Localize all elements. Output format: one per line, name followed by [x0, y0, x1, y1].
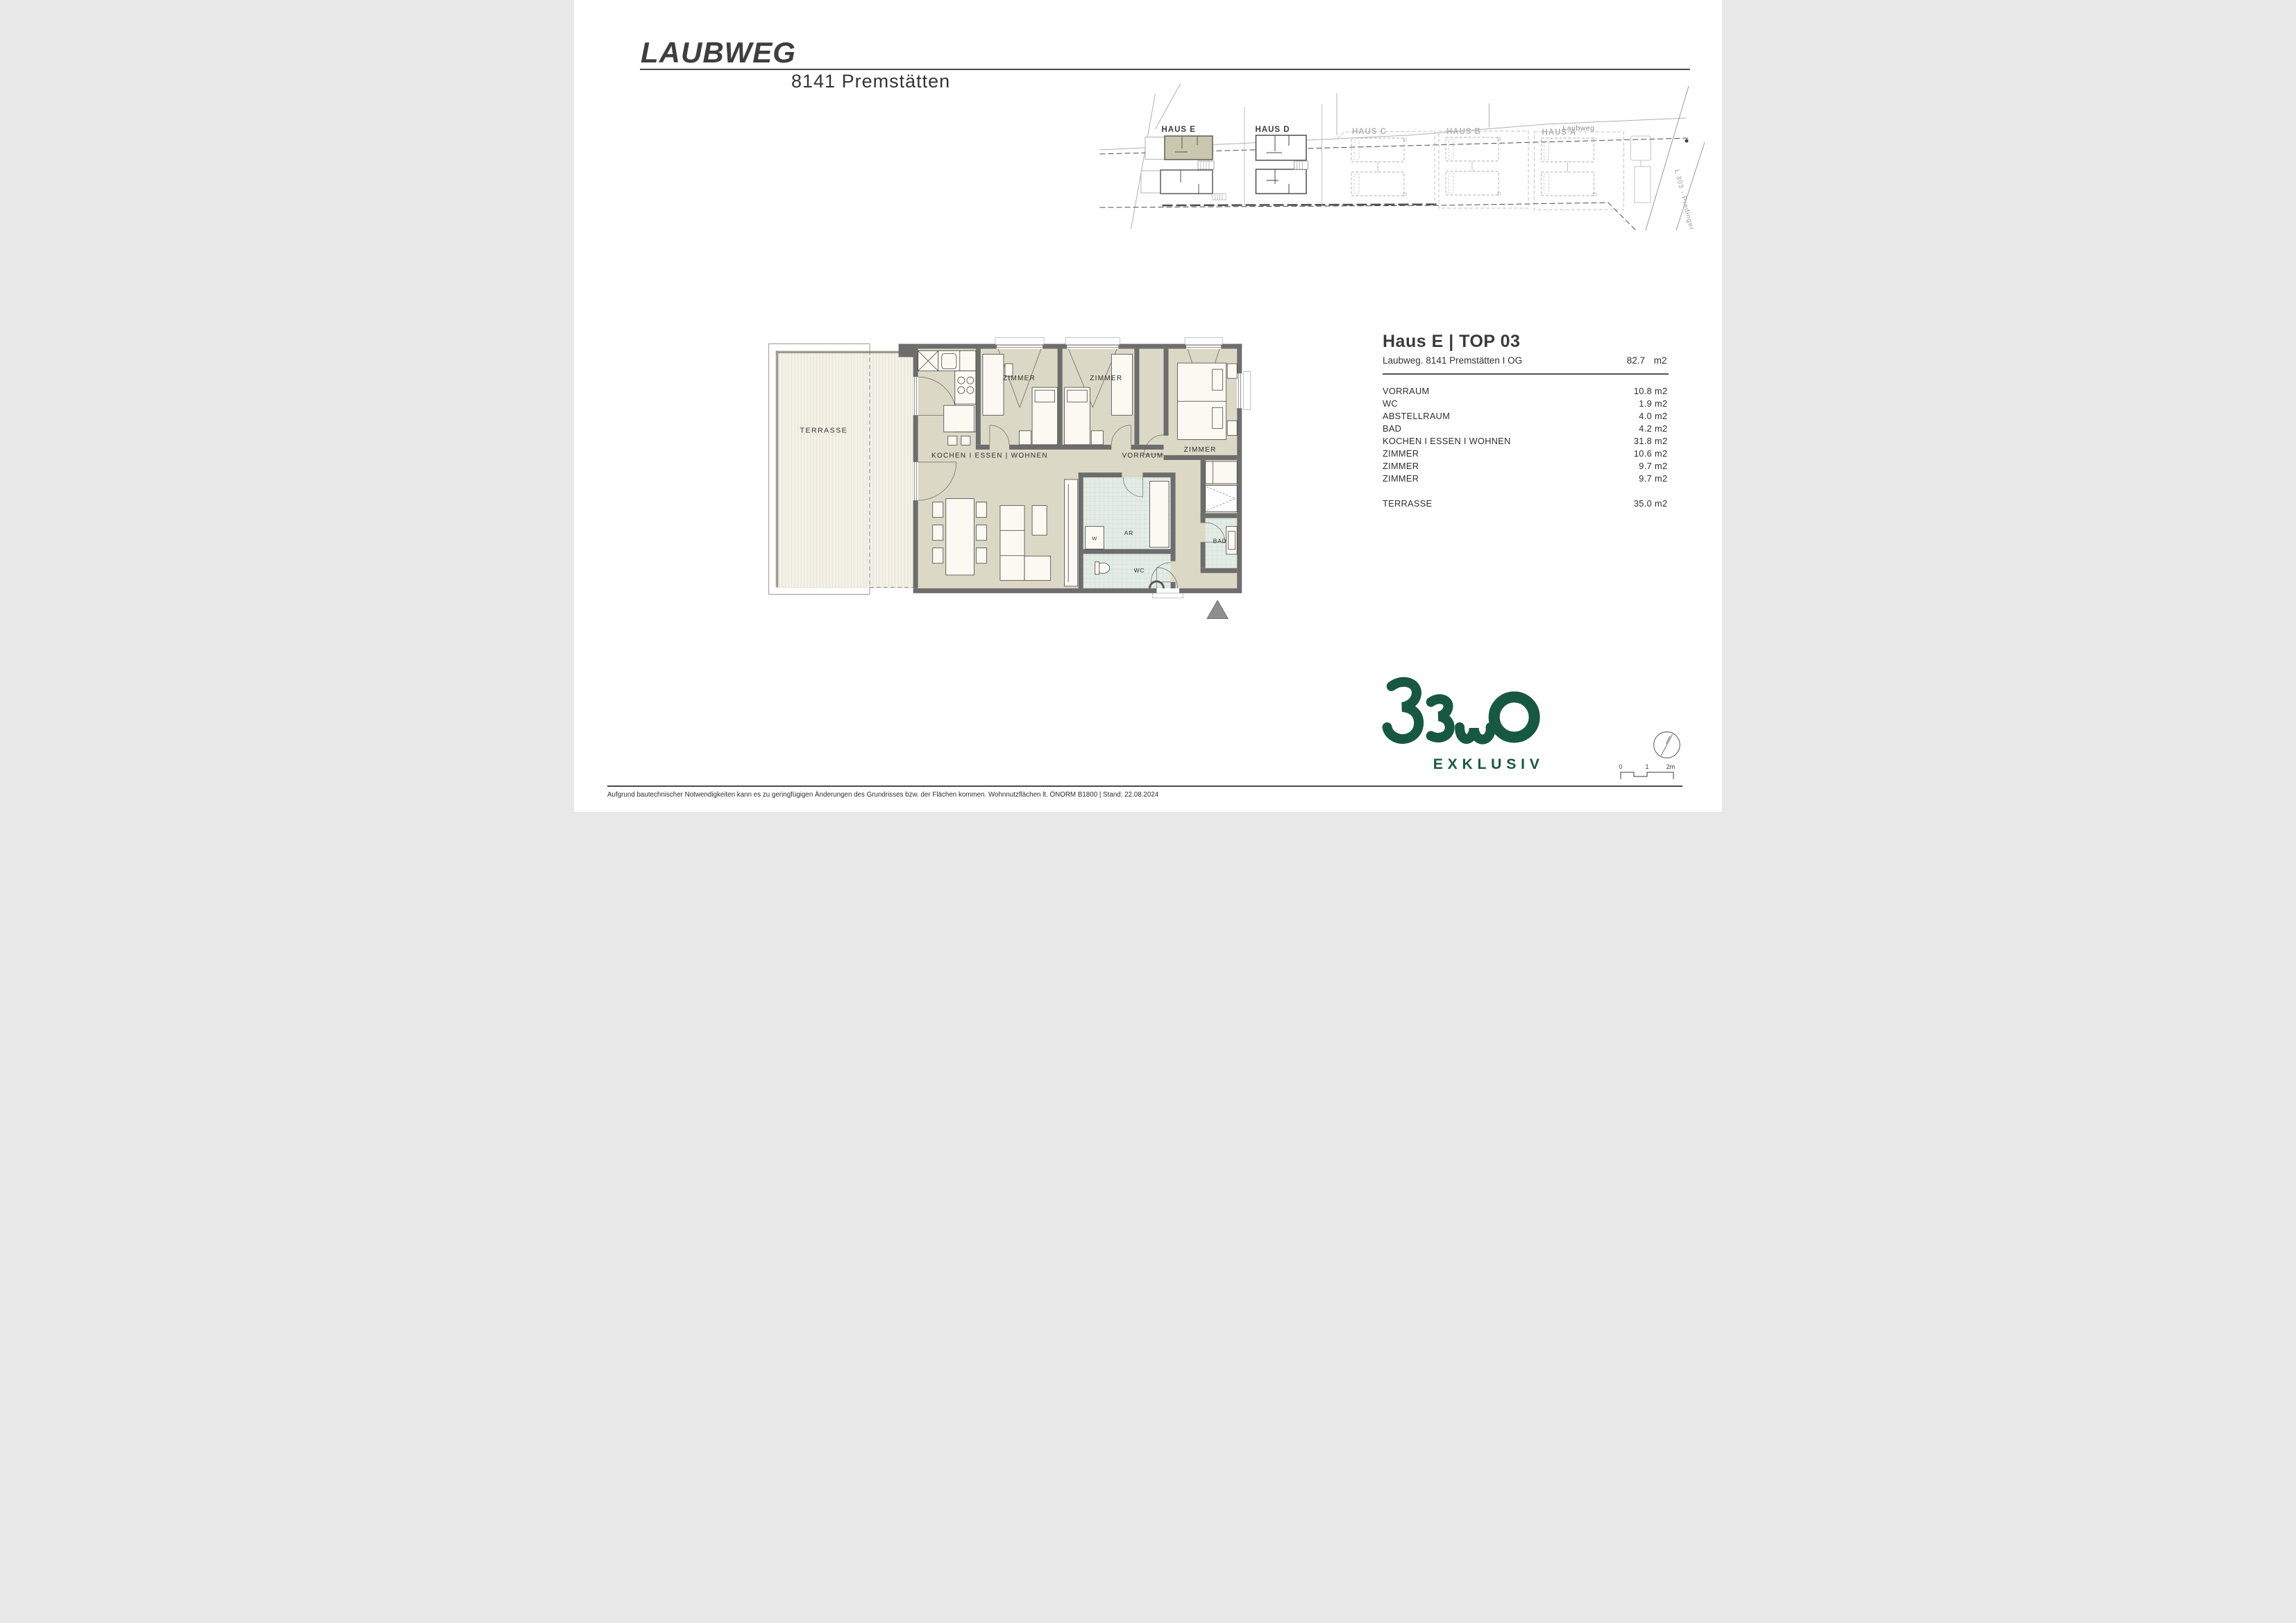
svg-text:2m: 2m [1666, 763, 1675, 770]
panel-divider [1383, 373, 1669, 375]
label-zimmer-2: ZIMMER [1090, 375, 1122, 382]
table-row: VORRAUM 10.8 m2 [1383, 386, 1669, 398]
label-zimmer-3: ZIMMER [1184, 446, 1217, 454]
svg-text:0: 0 [1619, 763, 1622, 770]
table-row: WC 1.9 m2 [1383, 398, 1669, 411]
label-kochen: KOCHEN I ESSEN | WOHNEN [931, 452, 1048, 459]
page-title: LAUBWEG [641, 36, 796, 69]
svg-text:HAUS A: HAUS A [1542, 128, 1577, 137]
unit-subtitle: Laubweg. 8141 Premstätten I OG [1383, 355, 1522, 366]
label-vorraum: VORRAUM [1122, 452, 1163, 459]
label-ar: AR [1124, 529, 1133, 536]
label-zimmer-1: ZIMMER [1003, 375, 1036, 382]
apartment-floor-plan: TERRASSE [760, 325, 1261, 631]
table-row: ZIMMER 10.6 m2 [1383, 448, 1669, 461]
logo-tagline: EXKLUSIV [1433, 756, 1542, 772]
site-house-d: HAUS D [1256, 126, 1308, 194]
footer-divider [607, 785, 1682, 787]
table-row-terrace: TERRASSE 35.0 m2 [1383, 498, 1669, 511]
unit-title: Haus E | TOP 03 [1383, 332, 1520, 352]
label-terrasse: TERRASSE [800, 426, 848, 434]
floorplan-sheet: LAUBWEG 8141 Premstätten Laubweg L 303 -… [574, 0, 1722, 812]
table-row: ABSTELLRAUM 4.0 m2 [1383, 411, 1669, 423]
site-house-c: HAUS C [1337, 128, 1435, 208]
total-area-unit: m2 [1654, 355, 1667, 366]
site-plan: Laubweg L 303 - Predingerstraße HAUS E [1095, 83, 1705, 230]
svg-text:HAUS D: HAUS D [1256, 126, 1290, 134]
scale-bar: 0 1 2m [1618, 763, 1682, 781]
table-row: KOCHEN I ESSEN I WOHNEN 31.8 m2 [1383, 436, 1669, 448]
bewo-logo-icon: EXKLUSIV [1376, 673, 1542, 781]
label-bad: BAD [1213, 538, 1227, 545]
table-row: BAD 4.2 m2 [1383, 423, 1669, 436]
site-unit-highlight [1165, 136, 1213, 160]
site-house-e: HAUS E [1141, 126, 1226, 200]
compass-icon [1652, 730, 1682, 760]
label-w: W [1092, 536, 1097, 542]
table-row: ZIMMER 9.7 m2 [1383, 461, 1669, 473]
total-area-value: 82.7 [1584, 355, 1645, 366]
svg-text:1: 1 [1645, 763, 1648, 770]
terrace: TERRASSE [769, 344, 913, 595]
label-wc: WC [1134, 567, 1145, 574]
north-arrow-icon [1207, 600, 1228, 618]
page-subtitle: 8141 Premstätten [791, 71, 950, 92]
table-row: ZIMMER 9.7 m2 [1383, 473, 1669, 486]
unit-total-area: 82.7 m2 [1584, 355, 1671, 366]
road-label: L 303 - Predingerstraße [1673, 169, 1700, 230]
footer-disclaimer: Aufgrund bautechnischer Notwendigkeiten … [607, 791, 1158, 799]
svg-text:HAUS B: HAUS B [1446, 128, 1481, 136]
header-divider [640, 69, 1690, 70]
svg-text:HAUS E: HAUS E [1162, 126, 1196, 134]
site-house-b: HAUS B [1439, 128, 1528, 208]
